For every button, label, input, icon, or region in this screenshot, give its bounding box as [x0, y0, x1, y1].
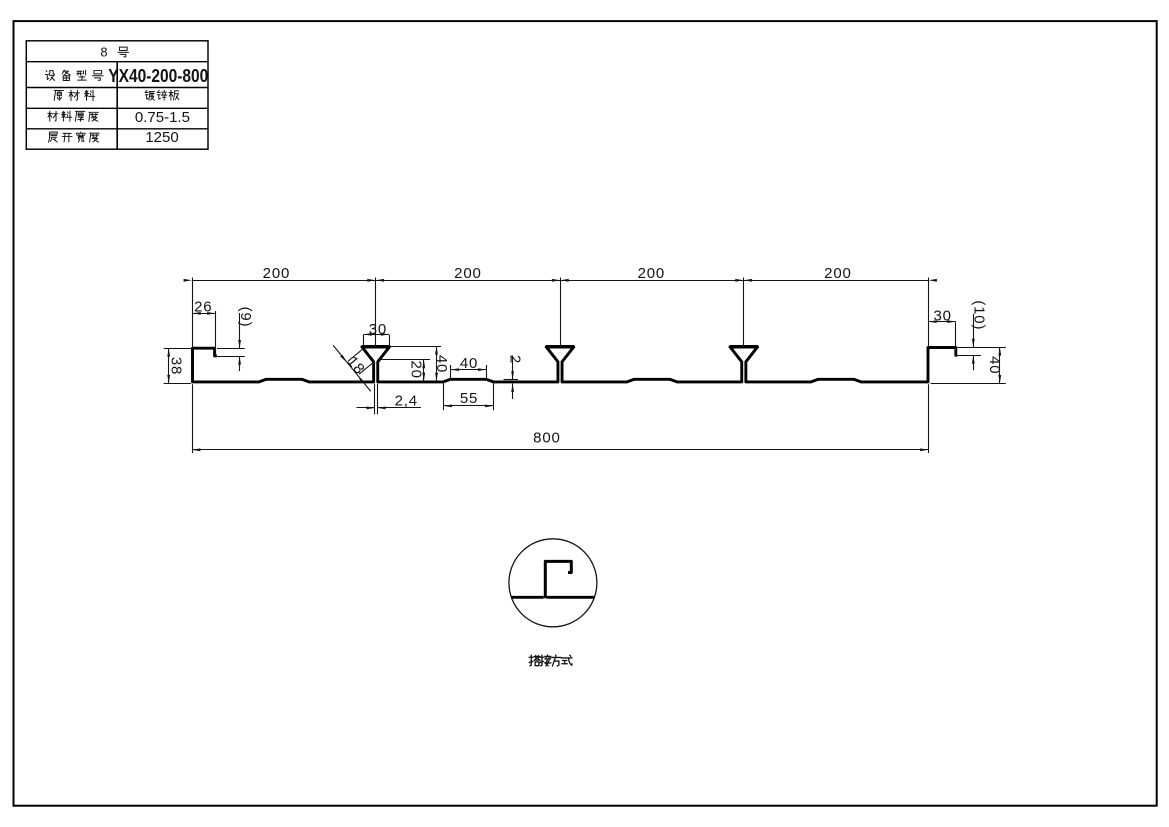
svg-text:200: 200: [638, 265, 665, 282]
svg-text:2,4: 2,4: [395, 392, 418, 409]
svg-text:20: 20: [408, 360, 425, 378]
svg-text:800: 800: [533, 430, 560, 447]
svg-text:40: 40: [460, 355, 478, 372]
svg-text:2: 2: [507, 355, 524, 364]
svg-text:1250: 1250: [145, 129, 178, 146]
svg-text:YX40-200-800: YX40-200-800: [108, 66, 208, 86]
svg-text:200: 200: [824, 265, 851, 282]
svg-text:40: 40: [986, 356, 1003, 374]
svg-text:0.75-1.5: 0.75-1.5: [135, 109, 190, 126]
svg-text:200: 200: [263, 265, 290, 282]
svg-text:(10): (10): [970, 300, 987, 330]
svg-text:26: 26: [194, 299, 212, 316]
svg-text:40: 40: [433, 355, 450, 373]
svg-text:8: 8: [100, 45, 107, 60]
svg-text:30: 30: [369, 321, 387, 338]
svg-text:18: 18: [343, 353, 368, 378]
svg-text:30: 30: [933, 308, 951, 325]
svg-text:38: 38: [167, 357, 184, 375]
svg-text:200: 200: [454, 265, 481, 282]
svg-text:55: 55: [460, 390, 478, 407]
svg-text:(9): (9): [237, 307, 254, 328]
